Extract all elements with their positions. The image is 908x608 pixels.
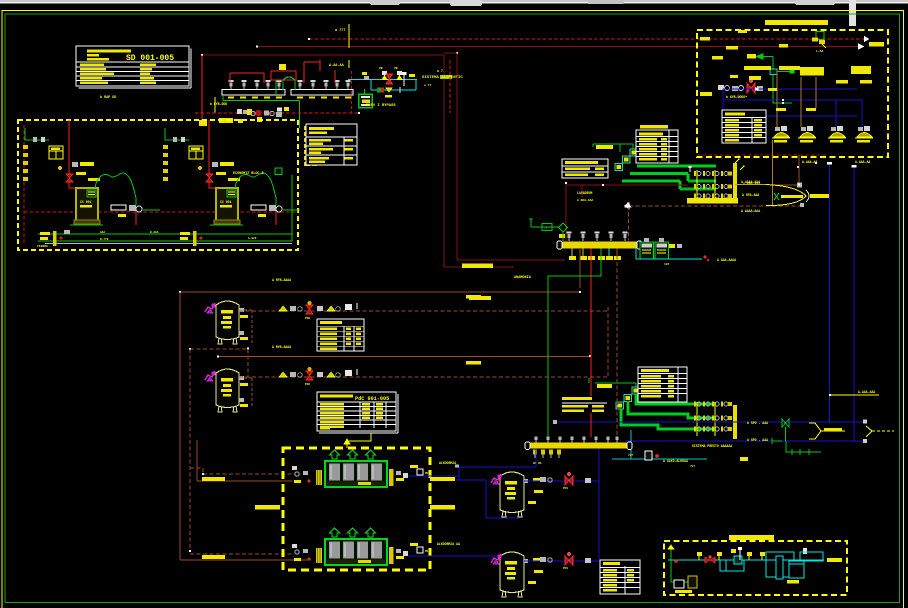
svg-text:A SPA-AAA: A SPA-AAA [742, 193, 759, 197]
svg-text:ANAMONIA: ANAMONIA [514, 276, 532, 280]
svg-text:A RYB-AAAA: A RYB-AAAA [272, 278, 291, 282]
svg-text:A-AAA-AAA: A-AAA-AAA [858, 390, 875, 394]
svg-text:PD: PD [425, 472, 429, 475]
svg-text:SD 001-005: SD 001-005 [126, 54, 174, 63]
svg-text:a 7: a 7 [437, 69, 443, 73]
svg-text:a 777: a 777 [335, 29, 346, 33]
svg-text:737: 737 [690, 465, 695, 468]
svg-text:L-AA: L-AA [816, 50, 823, 53]
svg-text:b-028: b-028 [248, 236, 257, 240]
svg-text:A-AA-AA: A-AA-AA [329, 64, 345, 68]
svg-text:b KYB-DDDD+: b KYB-DDDD+ [726, 95, 747, 99]
svg-text:PSD: PSD [305, 317, 310, 320]
svg-text:TIERRA: TIERRA [37, 245, 48, 248]
svg-text:A AAAA-AAA: A AAAA-AAA [741, 180, 760, 184]
svg-text:A ALKO-ALKOAA: A ALKO-ALKOAA [663, 459, 688, 463]
svg-text:CC 001: CC 001 [80, 200, 92, 204]
svg-text:VB: VB [394, 67, 398, 70]
svg-text:ALKOORMJA AA: ALKOORMJA AA [437, 542, 460, 546]
svg-text:A RAA-AAA: A RAA-AAA [577, 199, 593, 202]
svg-text:b SPD - AAA: b SPD - AAA [747, 438, 768, 442]
svg-text:b SPD - AAA: b SPD - AAA [747, 421, 768, 425]
svg-text:B-AAA: B-AAA [150, 231, 159, 234]
svg-text:LAVADEUM: LAVADEUM [577, 191, 592, 195]
svg-text:A-AAA-AA: A-AAA-AA [855, 160, 870, 164]
svg-text:VB: VB [379, 67, 383, 70]
svg-text:DESV I BYPASS: DESV I BYPASS [366, 104, 396, 108]
svg-text:CC 001: CC 001 [220, 200, 232, 204]
svg-text:b KYB-DDD: b KYB-DDD [210, 102, 227, 106]
svg-text:A RYB-AAAA: A RYB-AAAA [272, 345, 291, 349]
svg-text:A AAA-AAAA: A AAA-AAAA [717, 258, 736, 262]
svg-text:PSD: PSD [305, 383, 310, 386]
svg-text:B-778: B-778 [100, 238, 109, 241]
svg-text:PSV: PSV [563, 487, 568, 490]
svg-text:ALKOORMJA: ALKOORMJA [439, 461, 456, 465]
svg-text:PD: PD [425, 550, 429, 553]
svg-text:PSV: PSV [563, 567, 568, 570]
svg-text:-7-: -7- [544, 227, 550, 230]
svg-text:737: 737 [628, 454, 633, 457]
svg-text:A AAAA-AAA: A AAAA-AAA [741, 209, 760, 213]
svg-text:b RAP DD: b RAP DD [100, 95, 116, 100]
svg-text:PdC 001-005: PdC 001-005 [355, 396, 389, 402]
svg-text:ECONOMIZ BLOC B: ECONOMIZ BLOC B [233, 172, 264, 176]
svg-text:12F: 12F [664, 263, 670, 266]
svg-text:SISTEMA ALIMENTIC: SISTEMA ALIMENTIC [422, 76, 463, 80]
svg-text:SISTEMA PRESTO AAAAAA: SISTEMA PRESTO AAAAAA [692, 444, 732, 448]
svg-text:HS HS: HS HS [533, 462, 542, 465]
svg-text:a 77: a 77 [424, 84, 431, 87]
svg-text:AAA: AAA [100, 231, 105, 234]
